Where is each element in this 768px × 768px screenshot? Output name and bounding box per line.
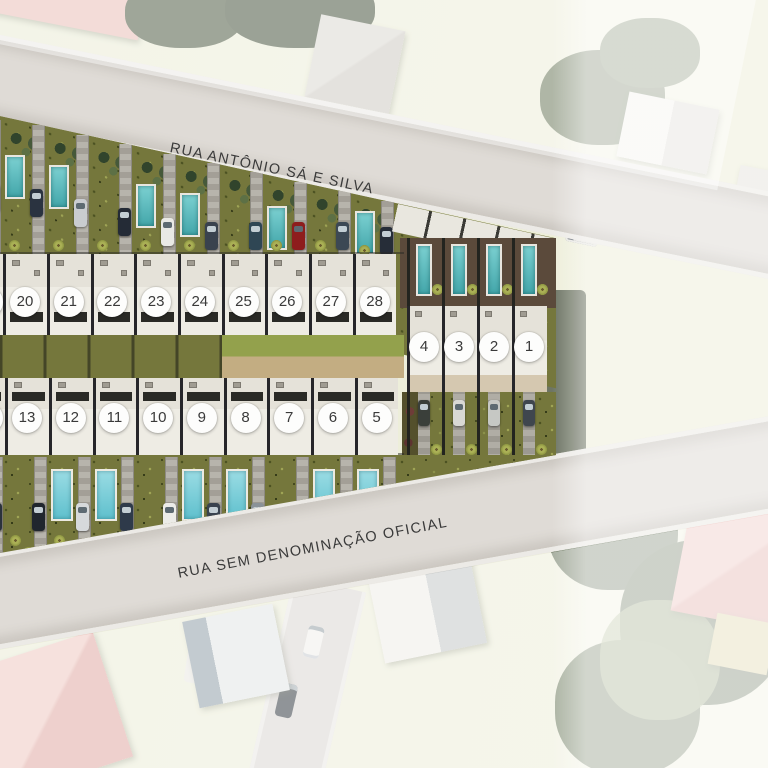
lot-number-circle: 8 — [231, 403, 261, 433]
lot-number-circle: 24 — [185, 287, 215, 317]
lot-number-circle: 13 — [12, 403, 42, 433]
lot-number-circle: 20 — [10, 287, 40, 317]
site-plan: 20212223242526272813121110987654321 RUA … — [0, 0, 768, 768]
lot-number-circle-partial — [0, 403, 3, 433]
lot-markers-layer: 20212223242526272813121110987654321 — [0, 0, 768, 768]
lot-number-circle: 21 — [54, 287, 84, 317]
lot-number-circle: 10 — [143, 403, 173, 433]
lot-number-circle: 2 — [479, 332, 509, 362]
lot-number-circle: 25 — [229, 287, 259, 317]
lot-number-circle: 3 — [444, 332, 474, 362]
lot-number-circle: 11 — [99, 403, 129, 433]
lot-number-circle: 26 — [272, 287, 302, 317]
lot-number-circle: 27 — [316, 287, 346, 317]
lot-number-circle: 23 — [141, 287, 171, 317]
lot-number-circle: 1 — [514, 332, 544, 362]
lot-number-circle: 4 — [409, 332, 439, 362]
lot-number-circle: 6 — [318, 403, 348, 433]
lot-number-circle: 22 — [97, 287, 127, 317]
lot-number-circle: 7 — [274, 403, 304, 433]
lot-number-circle-partial — [0, 287, 3, 317]
lot-number-circle: 9 — [187, 403, 217, 433]
lot-number-circle: 12 — [56, 403, 86, 433]
lot-number-circle: 28 — [360, 287, 390, 317]
lot-number-circle: 5 — [362, 403, 392, 433]
